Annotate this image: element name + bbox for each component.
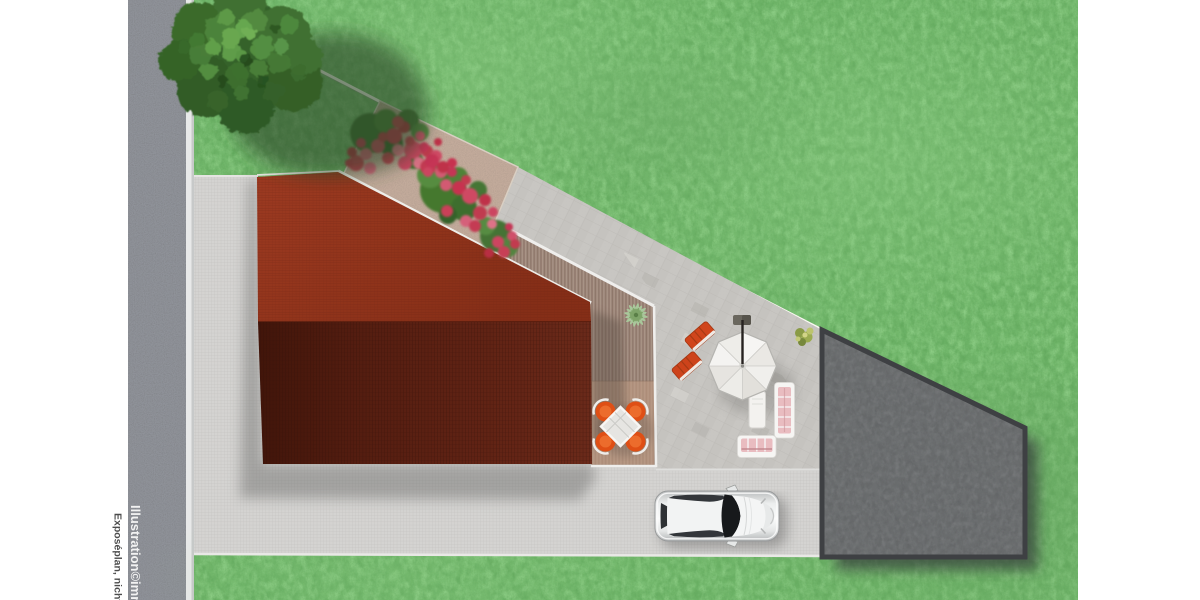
svg-text:Illustration©immocado: Illustration©immocado xyxy=(128,505,143,600)
svg-text:Exposéplan, nicht maßstabsgetr: Exposéplan, nicht maßstabsgetreu xyxy=(112,513,124,600)
